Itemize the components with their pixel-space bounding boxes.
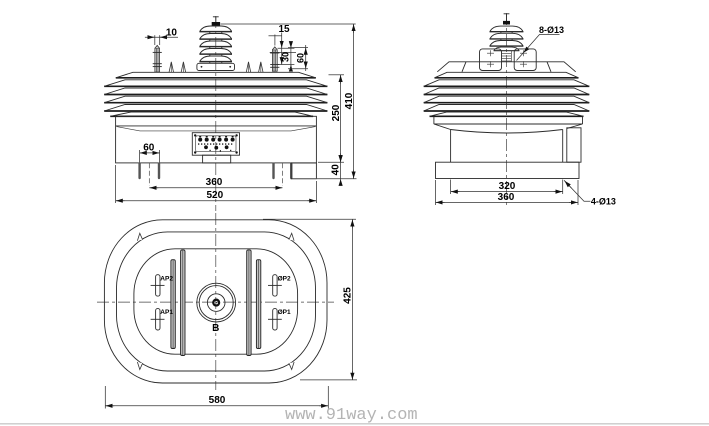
svg-text:425: 425 [342, 287, 353, 304]
svg-text:10: 10 [166, 28, 178, 39]
svg-text:AP1: AP1 [160, 309, 173, 316]
svg-text:www.91way.com: www.91way.com [285, 406, 418, 425]
svg-text:ØP1: ØP1 [278, 309, 291, 316]
svg-text:320: 320 [499, 181, 516, 192]
svg-text:360: 360 [206, 177, 223, 188]
svg-text:250: 250 [331, 104, 342, 121]
svg-text:40: 40 [331, 164, 342, 176]
svg-text:60: 60 [143, 142, 155, 153]
svg-text:410: 410 [344, 92, 355, 109]
svg-text:ØP2: ØP2 [278, 275, 291, 282]
svg-text:B: B [212, 323, 219, 334]
svg-text:520: 520 [206, 190, 223, 201]
svg-text:AP2: AP2 [160, 275, 173, 282]
svg-text:4-Ø13: 4-Ø13 [591, 196, 616, 206]
svg-text:30: 30 [281, 52, 291, 62]
svg-text:60: 60 [295, 53, 305, 63]
svg-text:15: 15 [278, 24, 290, 35]
svg-text:580: 580 [209, 395, 226, 406]
svg-text:8-Ø13: 8-Ø13 [539, 25, 564, 35]
svg-text:360: 360 [498, 192, 515, 203]
